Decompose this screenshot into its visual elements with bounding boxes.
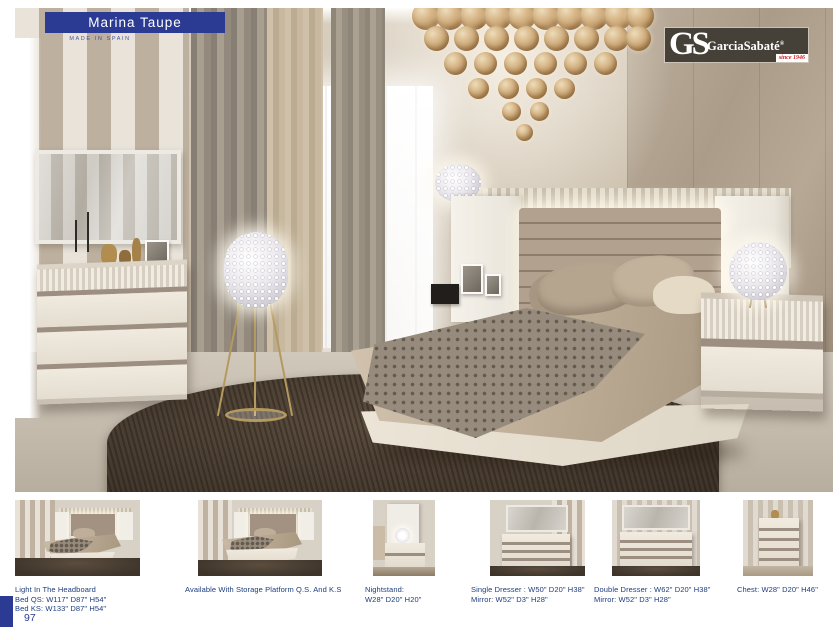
caption-line: Bed QS: W117" D87" H54" (15, 595, 106, 605)
thumbnail-single-dresser (490, 500, 585, 576)
made-in-label: MADE IN SPAIN (45, 36, 155, 42)
thumb-bed-edge (373, 526, 385, 560)
chandelier-bubble (424, 26, 449, 51)
brand-name-block: GarciaSabaté® since 1946 (707, 28, 808, 62)
thumbnail-double-dresser (612, 500, 700, 576)
hero-room-photo (15, 8, 833, 492)
headboard-side-panel-left (451, 196, 521, 322)
candlestick (87, 212, 89, 252)
chandelier-bubble (526, 78, 547, 99)
chandelier-bubble (468, 78, 489, 99)
caption-chest: Chest: W28" D20" H46" (737, 585, 818, 595)
chandelier-bubble (484, 26, 509, 51)
caption-single-dresser: Single Dresser : W50" D20" H38" Mirror: … (471, 585, 585, 604)
chandelier-bubble (626, 26, 651, 51)
caption-line: Chest: W28" D20" H46" (737, 585, 818, 595)
thumb-rug (15, 558, 140, 576)
thumbnail-chest (743, 500, 813, 576)
thumb-accent-band (759, 538, 799, 541)
chandelier-bubble (574, 26, 599, 51)
chandelier-bubble (554, 78, 575, 99)
thumb-accent-band (502, 542, 570, 545)
chandelier-bubble (516, 124, 533, 141)
nightstand-drawer (701, 346, 823, 393)
floor-lamp-base (225, 408, 287, 422)
brand-logo: GS GarciaSabaté® since 1946 (665, 28, 808, 62)
caption-line: Nightstand: (365, 585, 422, 595)
page-edge-tab (0, 596, 13, 627)
thumbnail-nightstand (373, 500, 435, 576)
caption-bed-storage: Available With Storage Platform Q.S. And… (185, 585, 341, 595)
thumb-accent-band (502, 550, 570, 553)
table-lamp-shade (729, 242, 787, 300)
bubble-chandelier (410, 8, 668, 162)
picture-frame-photo (463, 266, 481, 292)
curtain-beige (267, 8, 323, 364)
chandelier-bubble (534, 52, 557, 75)
brand-tagline: since 1946 (776, 54, 808, 62)
brand-name: GarciaSabaté® (707, 38, 808, 53)
page-number: 97 (24, 612, 36, 624)
brand-initials: GS (665, 28, 707, 62)
nightstand (701, 292, 823, 411)
caption-line: Double Dresser : W62" D20" H38" (594, 585, 711, 595)
chandelier-bubble (498, 78, 519, 99)
candlestick (75, 220, 77, 252)
caption-nightstand: Nightstand: W28" D20" H20" (365, 585, 422, 604)
thumb-mirror (622, 505, 690, 530)
thumb-accent-band (620, 556, 692, 559)
chandelier-bubble (530, 102, 549, 121)
floor-lamp-shade (224, 232, 288, 308)
thumb-rug (490, 566, 585, 576)
collection-title: Marina Taupe (88, 15, 182, 30)
thumb-accent-band (620, 540, 692, 543)
chandelier-bubble (502, 102, 521, 121)
picture-frame (485, 274, 501, 296)
chandelier-bubble (444, 52, 467, 75)
picture-frame-photo (487, 276, 499, 294)
thumbnail-bed-storage (198, 500, 322, 576)
caption-line: Available With Storage Platform Q.S. And… (185, 585, 341, 595)
thumb-mirror (506, 505, 568, 532)
thumb-accent-band (759, 558, 799, 561)
chandelier-bubble (514, 26, 539, 51)
thumb-rug (612, 566, 700, 576)
caption-line: Light In The Headboard (15, 585, 106, 595)
thumb-accent-band (502, 558, 570, 561)
caption-bed-headboard: Light In The Headboard Bed QS: W117" D87… (15, 585, 106, 614)
chandelier-bubble (564, 52, 587, 75)
thumb-floor (373, 567, 435, 576)
collection-title-box: Marina Taupe (45, 12, 225, 33)
alarm-clock (431, 284, 459, 304)
thumbnail-bed-headboard (15, 500, 140, 576)
caption-double-dresser: Double Dresser : W62" D20" H38" Mirror: … (594, 585, 711, 604)
curtain-right (331, 8, 385, 370)
nightstand-fluted-drawer (701, 298, 823, 341)
thumb-accent-band (620, 548, 692, 551)
thumb-side-panel (298, 512, 314, 540)
caption-line: Mirror: W52" D3" H28" (594, 595, 711, 605)
dresser (37, 259, 187, 404)
chandelier-bubble (474, 52, 497, 75)
dresser-drawer (37, 327, 187, 364)
thumb-side-panel (117, 512, 133, 540)
caption-line: W28" D20" H20" (365, 595, 422, 605)
thumb-rug (198, 560, 322, 576)
thumb-accent-band (385, 553, 425, 556)
caption-line: Single Dresser : W50" D20" H38" (471, 585, 585, 595)
thumb-striped-wall (15, 500, 55, 562)
chandelier-bubble (544, 26, 569, 51)
caption-line: Mirror: W52" D3" H28" (471, 595, 585, 605)
registered-mark: ® (780, 41, 784, 47)
thumb-floor (743, 566, 813, 576)
chandelier-bubble (454, 26, 479, 51)
wall-mirror (35, 150, 181, 244)
chandelier-bubble (504, 52, 527, 75)
curtain-left (191, 8, 269, 376)
picture-frame (461, 264, 483, 294)
floor-lamp-leg (254, 304, 256, 416)
thumb-side-panel (55, 512, 69, 542)
catalog-page: Marina Taupe MADE IN SPAIN GS GarciaSaba… (0, 0, 840, 640)
thumb-accent-band (759, 548, 799, 551)
thumb-accent-band (759, 528, 799, 531)
thumb-lamp (395, 528, 410, 543)
chandelier-bubble (594, 52, 617, 75)
